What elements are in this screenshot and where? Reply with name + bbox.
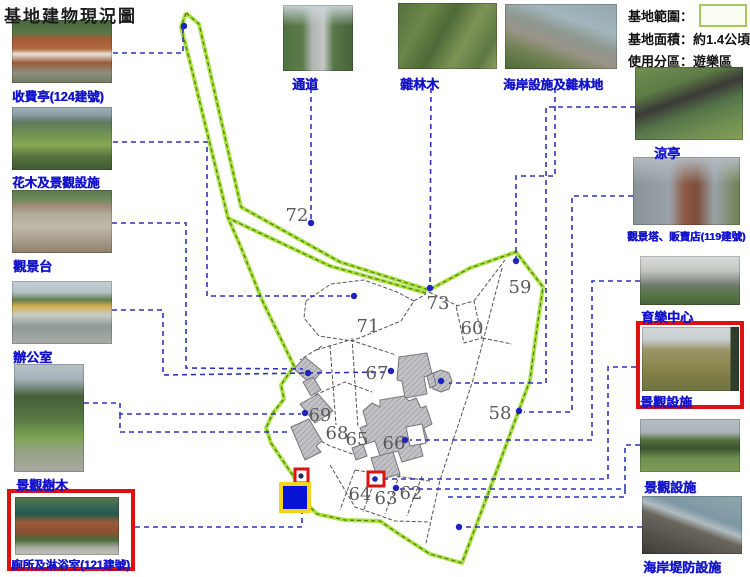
blue-yellow-marker xyxy=(281,484,309,511)
page-title: 基地建物現況圖 xyxy=(4,2,137,27)
photo-label-pavilion: 涼亭 xyxy=(654,143,680,162)
photo-toilet-shower xyxy=(15,497,119,555)
site-boundary xyxy=(181,13,543,563)
photo-label-mixed-woods: 雜林木 xyxy=(400,74,439,93)
photo-coast-and-woods xyxy=(505,4,617,69)
photo-tower-shop xyxy=(633,157,740,225)
photo-label-landscape-facility-1: 景觀設施 xyxy=(640,392,692,411)
parcel-label: 67 xyxy=(366,363,389,384)
parcel-label: 73 xyxy=(427,293,450,314)
parcel-label: 59 xyxy=(509,277,532,298)
site-status-figure: 基地建物現況圖 xyxy=(0,0,750,577)
parcel-label: 64 xyxy=(349,484,372,505)
photo-landscape-facility-2 xyxy=(640,419,740,472)
photo-label-tower-shop: 觀景塔、販賣店(119建號) xyxy=(627,229,745,244)
photo-passage xyxy=(283,5,353,71)
photo-mixed-woods xyxy=(398,3,497,69)
photo-office xyxy=(12,281,112,344)
parcel-label: 65 xyxy=(346,429,369,450)
photo-toll-booth xyxy=(12,20,112,83)
legend-boundary-label: 基地範圍： xyxy=(628,6,693,25)
legend-boundary-swatch xyxy=(699,4,747,27)
parcel-label: 62 xyxy=(400,483,423,504)
photo-landscape-facility-1 xyxy=(642,327,739,391)
parcel-label: 71 xyxy=(357,316,380,337)
photo-label-viewing-deck: 觀景台 xyxy=(13,256,52,275)
photo-label-recreation-center: 育樂中心 xyxy=(641,307,693,326)
photo-label-toll-booth: 收費亭(124建號) xyxy=(12,86,104,105)
photo-pavilion xyxy=(635,67,743,140)
photo-label-landscape-facility-2: 景觀設施 xyxy=(644,477,696,496)
photo-label-landscape-trees: 景觀樹木 xyxy=(16,475,68,494)
parcel-label: 63 xyxy=(375,488,398,509)
photo-label-passage: 通道 xyxy=(292,74,318,93)
photo-landscape-trees xyxy=(14,364,84,472)
photo-recreation-center xyxy=(640,256,740,305)
photo-garden xyxy=(12,107,112,170)
photo-viewing-deck xyxy=(12,190,112,253)
legend-zoning-text: 使用分區：遊樂區 xyxy=(628,51,732,70)
photo-label-office: 辦公室 xyxy=(13,347,52,366)
photo-seawall xyxy=(642,496,742,554)
parcel-label: 72 xyxy=(286,205,309,226)
photo-label-toilet-shower: 廁所及淋浴室(121建號) xyxy=(11,557,130,573)
legend-area-text: 基地面積：約1.4公頃 xyxy=(628,29,750,48)
photo-label-garden: 花木及景觀設施 xyxy=(12,172,100,191)
photo-label-coast-and-woods: 海岸設施及雜林地 xyxy=(503,74,603,93)
parcel-label: 66 xyxy=(383,433,406,454)
parcel-label: 58 xyxy=(489,403,512,424)
parcel-label: 60 xyxy=(461,318,484,339)
photo-label-seawall: 海岸堤防設施 xyxy=(643,557,721,576)
